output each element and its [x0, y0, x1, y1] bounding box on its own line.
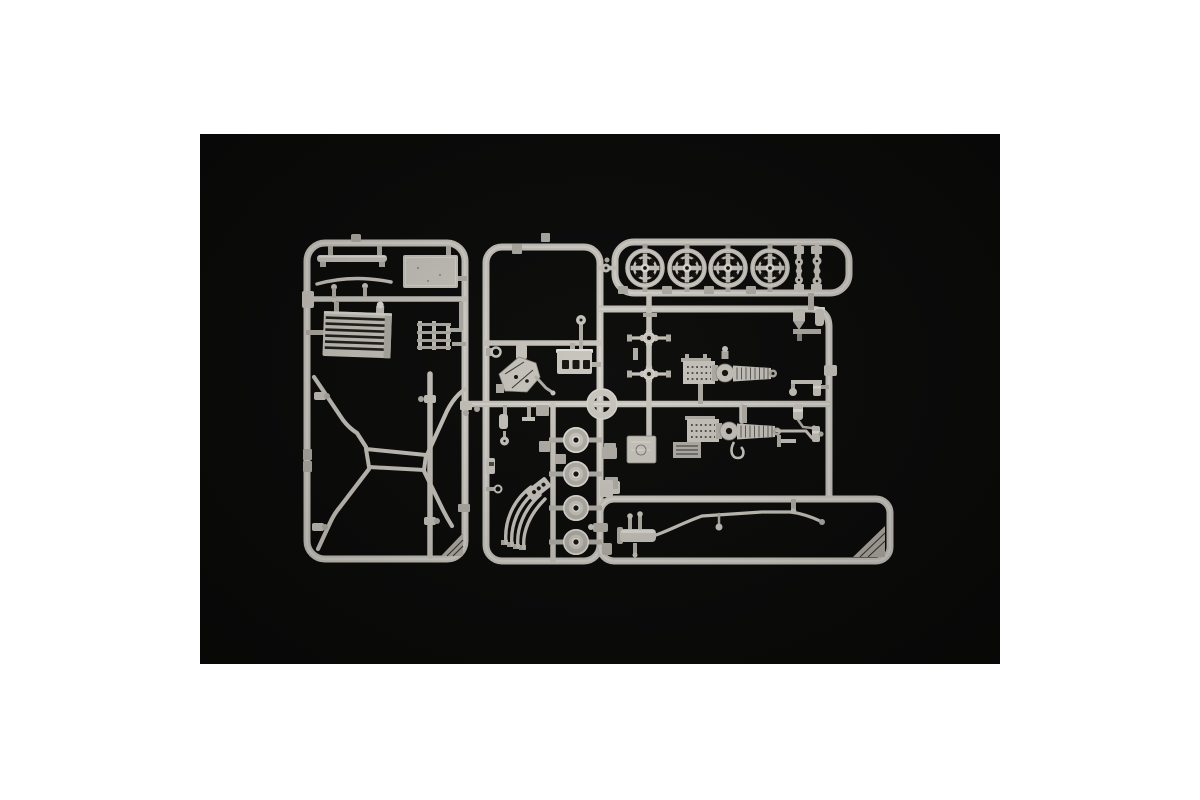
part-bead-column-2 [811, 245, 822, 291]
part-crank-cylinder [793, 404, 817, 431]
part-edge-bracket [486, 458, 495, 474]
part-brake-drum-3 [563, 495, 589, 521]
part-t-arm [777, 435, 796, 447]
part-t-fitting [522, 406, 535, 421]
part-exhaust-manifold [501, 476, 552, 550]
part-teardrop-fitting [500, 431, 509, 446]
part-hanging-cylinder [499, 405, 508, 429]
connector-wheels-right [808, 293, 814, 310]
part-flat-plate [403, 246, 467, 288]
part-brake-drums [549, 427, 602, 555]
part-ladder-bracket [417, 302, 466, 350]
part-wheel-3 [711, 251, 746, 286]
part-bead-column-1 [794, 245, 804, 291]
part-blower-upper [681, 346, 777, 404]
part-anti-roll-bar [617, 499, 825, 558]
part-blower-lower [673, 405, 781, 458]
part-curved-bumper [317, 278, 391, 290]
product-photo: Injection-molded model kit sprue of ligh… [200, 134, 1000, 664]
part-rod-assembly [789, 380, 829, 396]
part-engine-block [556, 343, 601, 374]
part-wheel-2 [670, 251, 705, 286]
part-wheel-1 [628, 251, 663, 286]
part-ring-fitting [486, 348, 501, 357]
part-corner-gusset-left [441, 533, 463, 556]
part-top-bar [317, 246, 387, 267]
page-canvas: Injection-molded model kit sprue of ligh… [0, 0, 1200, 800]
part-wheel-4 [753, 251, 788, 286]
sprue-photo-svg: Injection-molded model kit sprue of ligh… [200, 134, 1000, 664]
part-square-plate [627, 436, 656, 463]
part-brake-drum-2 [563, 461, 589, 487]
part-radiator-grille [306, 300, 392, 359]
part-brake-drum-1 [563, 427, 589, 453]
part-corner-gusset-bottom [853, 526, 885, 557]
part-bracket-assembly [496, 345, 556, 396]
part-brake-drum-4 [563, 529, 589, 555]
part-chassis-x-frame [314, 377, 465, 549]
